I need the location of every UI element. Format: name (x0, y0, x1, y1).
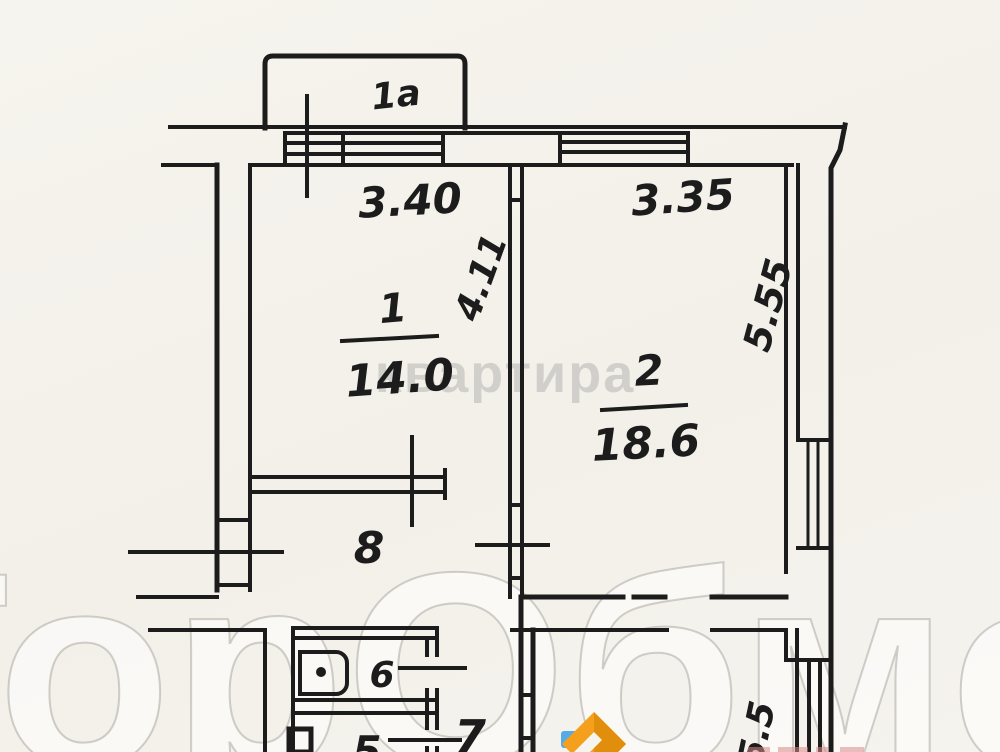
room2-fraction-line (602, 405, 686, 410)
room1-bottom-wall (250, 437, 445, 525)
room1-depth-dim: 4.11 (447, 229, 516, 327)
cut-off-red-marks (748, 747, 864, 752)
room1-number: 1 (377, 285, 409, 333)
corridor-number: 7 (454, 710, 486, 752)
bath-number: 6 (369, 655, 394, 696)
room1-area: 14.0 (344, 349, 456, 407)
room2-right-wall (786, 165, 831, 572)
room2-area: 18.6 (590, 415, 701, 472)
floor-plan-page: ГорОбмен квартира (0, 0, 1000, 752)
wall-band (443, 133, 560, 165)
room1-width-dim: 3.40 (357, 173, 463, 227)
double-wall (250, 477, 445, 492)
sink-drain-dot (316, 667, 326, 677)
window-mullions (560, 133, 688, 165)
balcony (265, 56, 465, 128)
room2-depth-dim: 5.55 (735, 254, 802, 356)
watermark-big-text: ГорОбмен (0, 514, 1000, 752)
room2-number: 2 (633, 345, 665, 395)
room2-width-dim: 3.35 (630, 169, 737, 225)
balcony-wall (265, 56, 465, 128)
room1-fraction-line (342, 336, 437, 341)
hall-number: 8 (354, 523, 385, 574)
room5-number: 5 (352, 727, 381, 752)
floor-plan: ГорОбмен квартира (0, 0, 1000, 752)
balcony-label: 1а (369, 73, 422, 119)
window-lines (560, 133, 688, 165)
room2-window (560, 133, 792, 165)
